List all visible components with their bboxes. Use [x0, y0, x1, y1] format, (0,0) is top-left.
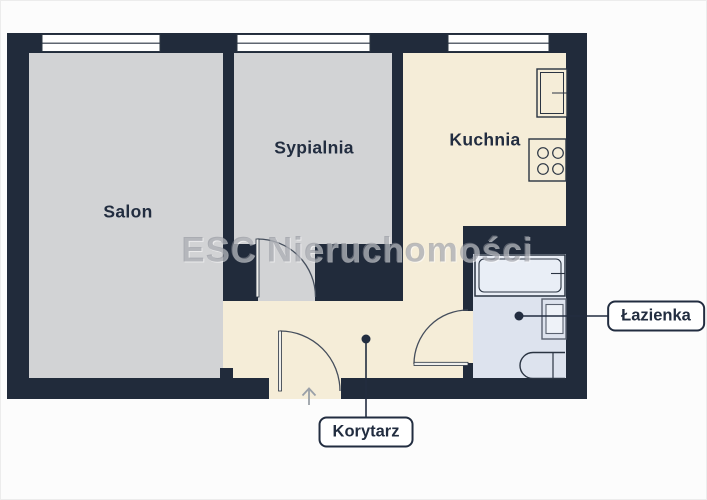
korytarz-callout-dot: [362, 335, 371, 344]
callout-korytarz: Korytarz: [319, 417, 414, 448]
fridge-icon: [537, 69, 567, 117]
stove-icon: [529, 139, 566, 181]
window-icon-kuchnia: [448, 35, 549, 52]
floorplan-canvas: ESC Nieruchomości ESC Nieruchomości Salo…: [0, 0, 707, 500]
bathroom-doorway-floor: [463, 311, 473, 363]
sink-icon: [542, 299, 566, 339]
room-label-sypialnia: Sypialnia: [274, 138, 354, 159]
toilet-icon: [520, 353, 565, 379]
wall-stub-salon-doorway: [220, 368, 233, 379]
room-label-salon: Salon: [103, 202, 152, 223]
callout-lazienka: Łazienka: [607, 301, 705, 332]
lazienka-callout-dot: [515, 312, 524, 321]
room-label-kuchnia: Kuchnia: [449, 130, 520, 151]
room-floor-korytarz: [223, 301, 463, 378]
window-icon-salon: [42, 35, 160, 52]
window-icon-sypialnia: [237, 35, 370, 52]
watermark: ESC Nieruchomości: [181, 231, 533, 270]
